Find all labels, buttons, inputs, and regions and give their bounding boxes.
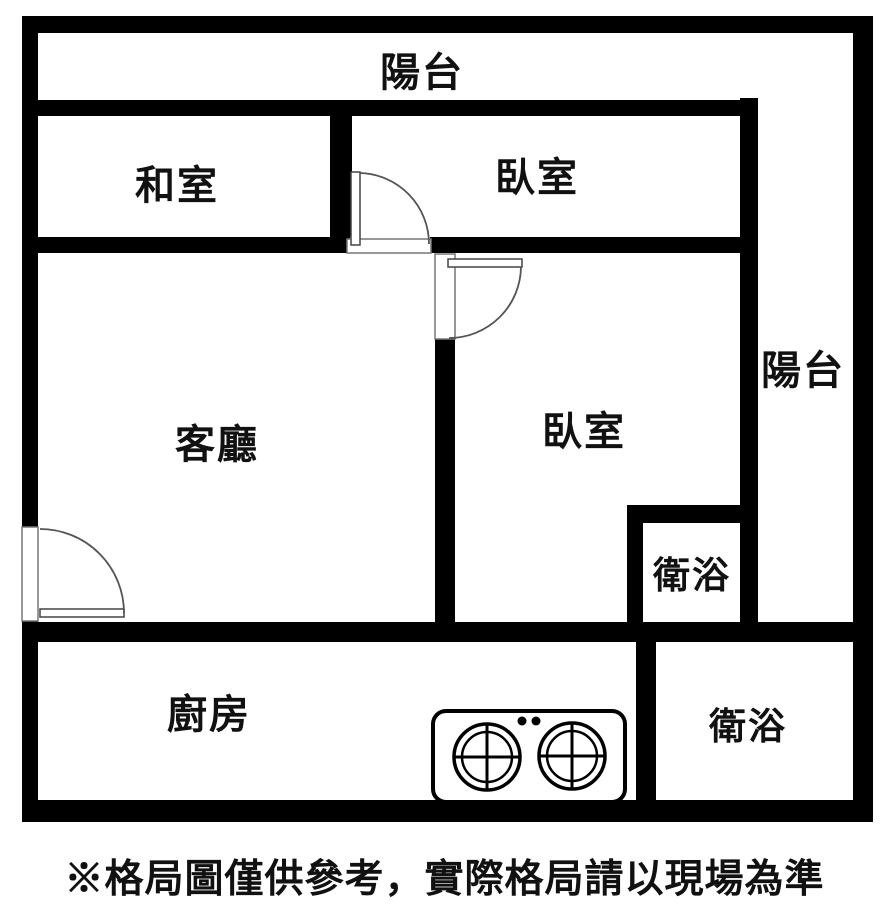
wall-bath-inner-top	[627, 505, 758, 523]
wall-bath-inner-left	[627, 505, 643, 642]
wall-outer-top	[22, 16, 873, 33]
wall-living-bedroom-divider	[435, 338, 455, 622]
label-bathroom-bottom: 衛浴	[708, 706, 787, 747]
wall-kitchen-top	[22, 622, 873, 642]
label-balcony-top: 陽台	[380, 51, 464, 95]
stove-burner-right	[539, 723, 605, 789]
stove-burner-left	[454, 724, 520, 790]
door-leaf	[40, 609, 124, 617]
wall-balcony-bottom	[30, 100, 758, 116]
door-leaf	[448, 259, 522, 267]
label-living-room: 客廳	[175, 422, 259, 467]
wall-outer-left-upper	[22, 16, 38, 528]
label-bedroom-top: 臥室	[495, 156, 579, 200]
stove-icon	[433, 711, 625, 802]
door-frame	[22, 527, 38, 621]
disclaimer-text: ※格局圖僅供參考，實際格局請以現場為準	[0, 848, 889, 904]
wall-outer-left-lower	[22, 620, 38, 822]
floor-plan-diagram: 陽台 和室 臥室 陽台 客廳 臥室 衛浴 廚房 衛浴	[0, 0, 889, 918]
stove-knob-dot	[532, 717, 541, 726]
door-leaf	[351, 172, 360, 245]
label-bedroom-right: 臥室	[542, 410, 626, 454]
label-kitchen: 廚房	[167, 692, 251, 737]
label-tatami-room: 和室	[135, 164, 219, 208]
floor-plan-page: 陽台 和室 臥室 陽台 客廳 臥室 衛浴 廚房 衛浴 ※格局圖僅供參考，實際格局…	[0, 0, 889, 918]
label-bathroom-inner: 衛浴	[652, 555, 731, 596]
wall-kitchen-bath-divider	[636, 642, 656, 800]
wall-outer-right	[853, 16, 873, 822]
wall-bedrooms-right	[740, 98, 758, 622]
label-balcony-right: 陽台	[761, 349, 845, 393]
wall-tatami-right	[330, 100, 352, 237]
stove-knob-dot	[518, 717, 527, 726]
wall-tatami-bottom	[30, 237, 350, 253]
wall-bedroom-top-bottom	[430, 237, 758, 253]
